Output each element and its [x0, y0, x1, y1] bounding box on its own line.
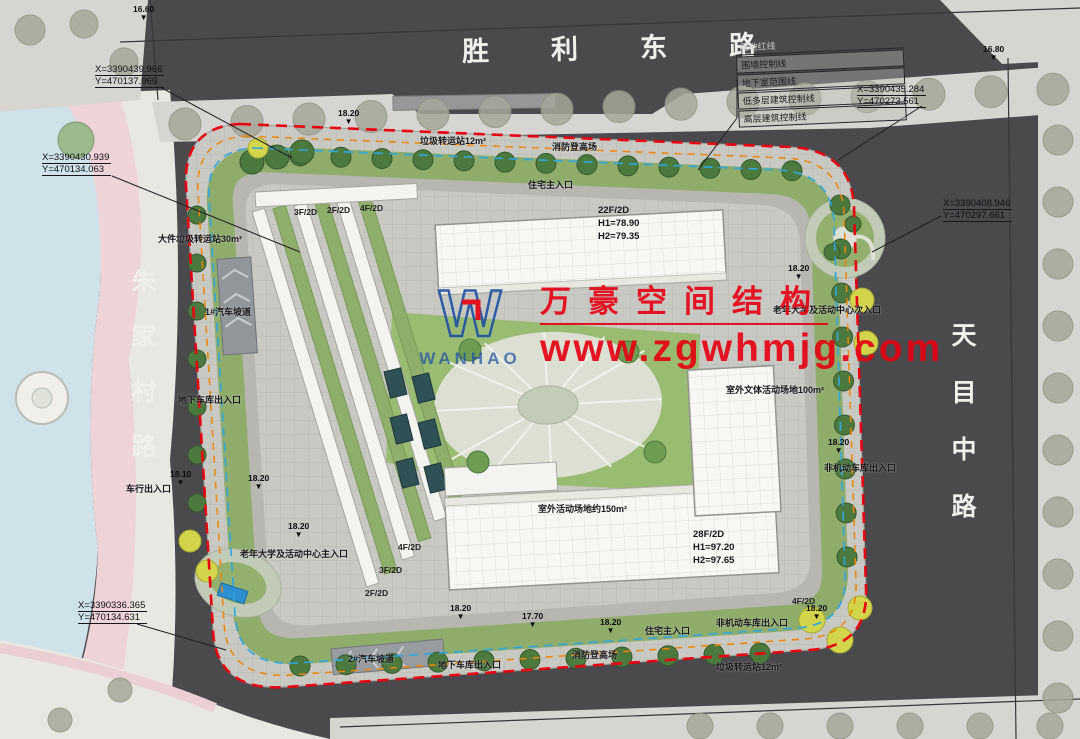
wing-floor-label: 2F/2D	[327, 205, 350, 215]
elevation-marker: 18.10▼	[170, 470, 191, 487]
coordinate-x: X=3390336.365	[78, 600, 147, 612]
coordinate-x: X=3390439.966	[95, 64, 164, 76]
elevation-triangle-icon: ▼	[457, 612, 465, 621]
tower-h1: H1=97.20	[693, 542, 734, 553]
coordinate-callout: X=3390435.284 Y=470273.561	[857, 84, 926, 108]
tower-h1: H1=78.90	[598, 218, 639, 229]
wing-floor-label: 4F/2D	[398, 542, 421, 552]
coordinate-y: Y=470297.661	[943, 210, 1012, 222]
site-annotation: 非机动车库出入口	[716, 616, 788, 629]
watermark-company: 万豪空间结构	[540, 276, 828, 325]
coordinate-y: Y=470137.969	[95, 76, 164, 88]
elevation-marker: 18.20▼	[450, 604, 471, 621]
elevation-triangle-icon: ▼	[255, 482, 263, 491]
tower-28f-label: 28F/2D H1=97.20 H2=97.65	[693, 528, 734, 567]
svg-text:W: W	[439, 276, 502, 350]
elevation-marker: 18.20▼	[248, 474, 269, 491]
tower-floors: 22F/2D	[598, 205, 629, 216]
coordinate-y: Y=470134.631	[78, 612, 147, 624]
elevation-marker: 18.20▼	[288, 522, 309, 539]
site-annotation: 大件垃圾转运站30m²	[158, 232, 242, 245]
elevation-triangle-icon: ▼	[607, 626, 615, 635]
coordinate-callout: X=3390336.365 Y=470134.631	[78, 600, 147, 624]
elevation-triangle-icon: ▼	[813, 612, 821, 621]
wanhao-logo-icon: W	[418, 276, 522, 350]
bus-bay-platform	[393, 94, 555, 111]
watermark: W WANHAO 万豪空间结构 www.zgwhmjg.com	[418, 276, 943, 371]
site-annotation: 住宅主入口	[645, 624, 690, 637]
site-annotation: 老年大学及活动中心主入口	[240, 547, 348, 560]
site-annotation: 室外文体活动场地100m²	[726, 383, 824, 396]
site-annotation: 消防登高场	[552, 140, 597, 153]
tower-h2: H2=97.65	[693, 555, 734, 566]
elevation-triangle-icon: ▼	[177, 478, 185, 487]
coordinate-callout: X=3390430.939 Y=470134.063	[42, 152, 111, 176]
elevation-triangle-icon: ▼	[990, 53, 998, 62]
line-legend: 用地红线 围墙控制线 地下室范围线 低多层建筑控制线 高层建筑控制线	[735, 32, 907, 128]
road-name-zhujiacun: 朱家村路	[124, 268, 160, 488]
low-podium-block	[444, 462, 557, 496]
elevation-triangle-icon: ▼	[295, 530, 303, 539]
coordinate-callout: X=3390408.946 Y=470297.661	[943, 198, 1012, 222]
elevation-marker: 18.20▼	[828, 438, 849, 455]
road-name-tianmu-middle: 天目中路	[944, 322, 980, 550]
site-annotation: 室外活动场地约150m²	[538, 502, 627, 515]
site-annotation: 车行出入口	[126, 482, 171, 495]
coordinate-x: X=3390430.939	[42, 152, 111, 164]
tower-22f-label: 22F/2D H1=78.90 H2=79.35	[598, 204, 639, 243]
wing-floor-label: 3F/2D	[379, 565, 402, 575]
coordinate-x: X=3390408.946	[943, 198, 1012, 210]
elevation-marker: 16.60▼	[133, 5, 154, 22]
site-annotation: 垃圾转运站12m²	[716, 660, 782, 673]
tower-h2: H2=79.35	[598, 231, 639, 242]
site-annotation: 住宅主入口	[528, 178, 573, 191]
wing-floor-label: 2F/2D	[365, 588, 388, 598]
elevation-marker: 18.20▼	[806, 604, 827, 621]
site-annotation: 1#汽车坡道	[205, 305, 251, 318]
site-annotation: 消防登高场	[572, 648, 617, 661]
wing-floor-label: 3F/2D	[294, 207, 317, 217]
elevation-triangle-icon: ▼	[835, 446, 843, 455]
elevation-marker: 18.20▼	[600, 618, 621, 635]
site-annotation: 地下车库出入口	[438, 658, 501, 671]
coordinate-x: X=3390435.284	[857, 84, 926, 96]
elevation-marker: 17.70▼	[522, 612, 543, 629]
site-annotation: 地下车库出入口	[178, 393, 241, 406]
elevation-triangle-icon: ▼	[345, 117, 353, 126]
wanhao-wordmark: WANHAO	[418, 349, 522, 369]
site-annotation: 2#汽车坡道	[348, 652, 394, 665]
watermark-website: www.zgwhmjg.com	[540, 327, 943, 371]
coordinate-y: Y=470134.063	[42, 164, 111, 176]
site-annotation: 垃圾转运站12m²	[420, 134, 486, 147]
coordinate-y: Y=470273.561	[857, 96, 926, 108]
elevation-marker: 16.80▼	[983, 45, 1004, 62]
wanhao-logo: W WANHAO	[418, 276, 522, 369]
elevation-marker: 18.20▼	[338, 109, 359, 126]
site-annotation: 非机动车库出入口	[824, 461, 896, 474]
wing-floor-label: 4F/2D	[360, 203, 383, 213]
coordinate-callout: X=3390439.966 Y=470137.969	[95, 64, 164, 88]
elevation-triangle-icon: ▼	[140, 13, 148, 22]
elevation-triangle-icon: ▼	[529, 620, 537, 629]
tower-floors: 28F/2D	[693, 529, 724, 540]
site-plan-page: 胜利东路 朱家村路 天目中路 用地红线 围墙控制线 地下室范围线 低多层建筑控制…	[0, 0, 1080, 739]
